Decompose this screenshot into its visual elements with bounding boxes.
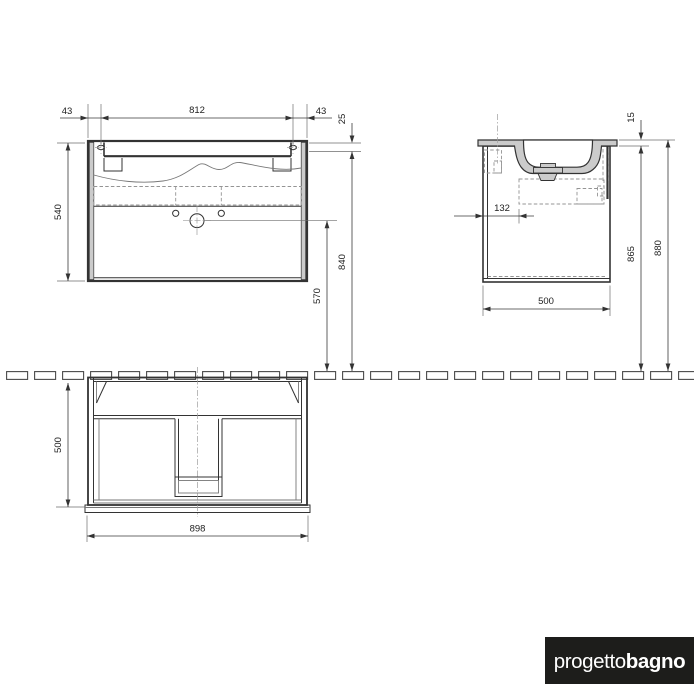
dim-overall-height-label: 880 <box>653 240 664 256</box>
plan-view <box>85 367 310 517</box>
dim-rail-height-label: 840 <box>337 254 348 270</box>
siphon-channel-walls <box>175 419 222 481</box>
dim-front-edge-right-label: 43 <box>316 106 327 117</box>
dim-cabinet-height-label: 540 <box>53 204 64 220</box>
faucet-hole-left <box>173 210 179 216</box>
dim-front-edge-left-label: 43 <box>62 106 73 117</box>
rail-corner-steps <box>104 158 291 171</box>
dim-side-depth-label: 500 <box>538 296 554 307</box>
technical-drawing-sheet: 43 812 43 540 25 840 570 <box>0 0 700 700</box>
front-left-side-panel <box>89 142 94 279</box>
drain-tailpiece <box>538 174 557 181</box>
dim-plan-width-label: 898 <box>190 524 206 535</box>
dim-top-thickness-label: 15 <box>626 112 637 123</box>
dim-plan-depth-label: 500 <box>53 437 64 453</box>
hidden-drawer-side-outline <box>519 179 604 204</box>
plan-dimensions: 500 898 <box>53 383 308 542</box>
front-dimensions: 43 812 43 540 25 840 570 <box>53 104 361 371</box>
hidden-runner-outline <box>577 189 602 205</box>
rail-end-tabs <box>104 143 291 157</box>
side-view <box>478 114 617 282</box>
basin-wave-line <box>94 162 301 182</box>
basin-bowl-interior <box>524 140 593 167</box>
siphon-box-inner <box>179 481 219 494</box>
siphon-box-outer <box>175 477 222 497</box>
logo-text-bold: bagno <box>626 650 686 673</box>
drain-plug-top <box>541 164 556 168</box>
logo-text-regular: progetto <box>554 650 626 673</box>
drain-flange <box>534 168 563 174</box>
mounting-hole-centerlines <box>95 142 299 155</box>
logo-text: progettobagno <box>554 650 686 673</box>
front-cabinet-outline <box>88 141 307 281</box>
wall-hatch-strip <box>6 371 694 380</box>
brand-logo: progettobagno <box>545 637 694 684</box>
hidden-drawer-dividers <box>176 187 222 206</box>
dim-front-clearance-label: 132 <box>494 203 510 214</box>
front-right-side-panel <box>301 142 306 279</box>
hidden-drawer-outline <box>94 187 301 206</box>
dim-drain-height-label: 570 <box>312 288 323 304</box>
dim-underside-height-label: 865 <box>626 246 637 262</box>
dim-front-hole-spacing-label: 812 <box>189 105 205 116</box>
faucet-hole-right <box>218 210 224 216</box>
front-view <box>88 141 307 281</box>
dim-rail-offset-label: 25 <box>337 114 348 125</box>
